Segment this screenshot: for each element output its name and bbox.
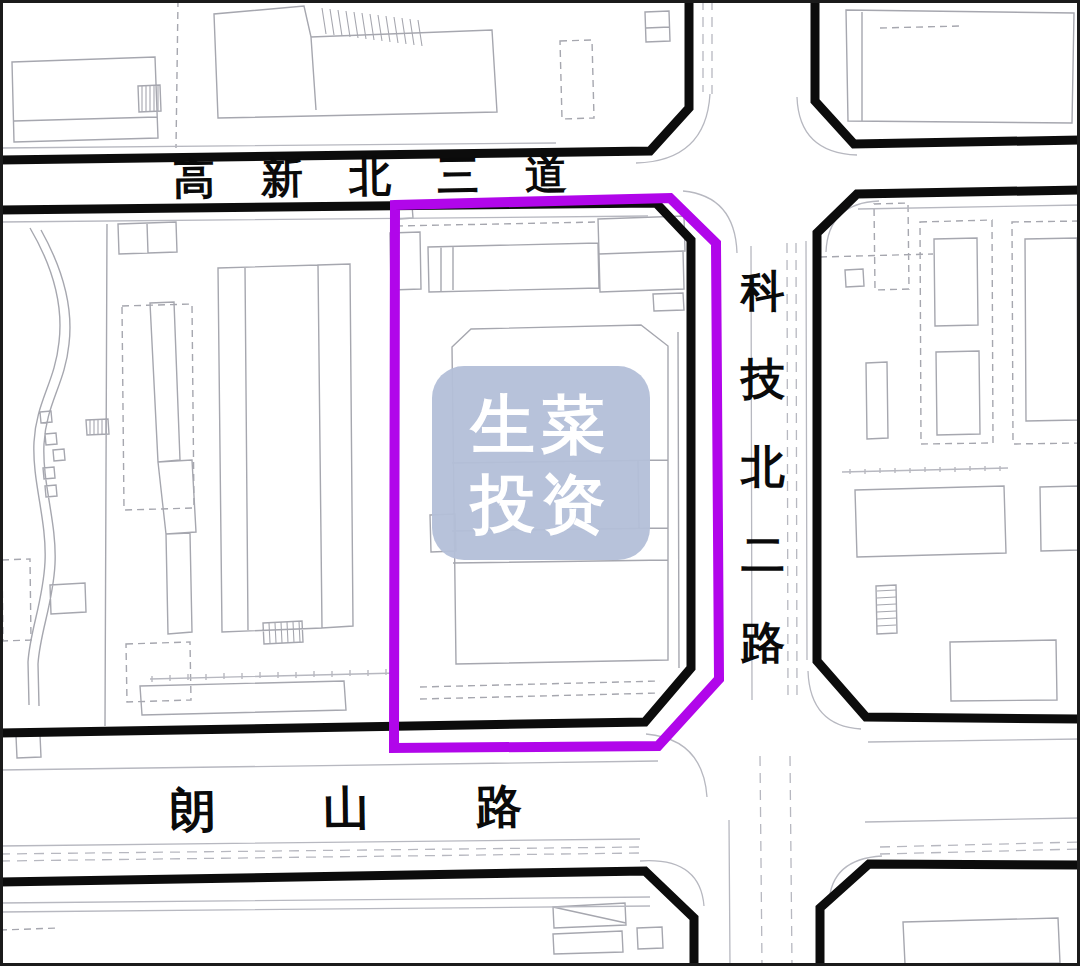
watermark-line1: 生菜 <box>469 389 611 461</box>
site-plan-map: 高新北三道 科技北二路 朗山路 生菜 投资 <box>0 0 1080 966</box>
road-edge-southeast <box>820 864 1080 966</box>
road-label-bottom: 朗山路 <box>170 779 630 837</box>
road-edge-north <box>0 0 689 160</box>
road-label-top: 高新北三道 <box>173 150 614 203</box>
roof-hatch-lines <box>90 8 1000 682</box>
watermark-line2: 投资 <box>469 468 611 540</box>
watermark: 生菜 投资 <box>432 366 650 560</box>
road-edge-southwest <box>0 871 694 966</box>
road-label-right: 科技北二路 <box>739 266 785 667</box>
site-plan-canvas: 高新北三道 科技北二路 朗山路 生菜 投资 <box>0 0 1080 966</box>
